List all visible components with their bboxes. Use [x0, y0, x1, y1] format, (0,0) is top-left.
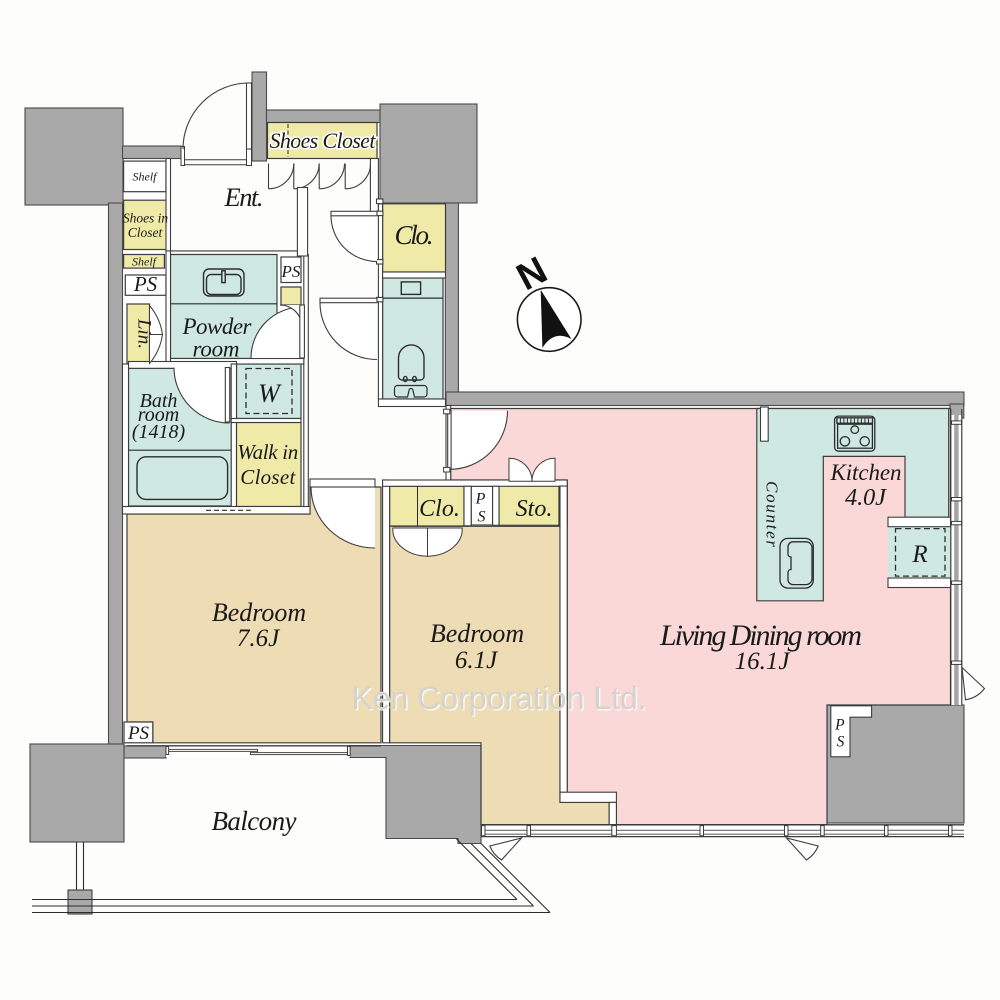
- svg-text:Bedroom: Bedroom: [212, 598, 306, 627]
- svg-text:S: S: [837, 734, 845, 751]
- svg-text:W: W: [258, 379, 282, 408]
- svg-text:Ken Corporation Ltd.: Ken Corporation Ltd.: [351, 680, 646, 716]
- svg-text:room: room: [193, 337, 240, 362]
- svg-text:6.1J: 6.1J: [455, 647, 499, 674]
- svg-text:Kitchen: Kitchen: [830, 460, 902, 485]
- svg-text:Closet: Closet: [128, 225, 164, 240]
- svg-text:Closet: Closet: [240, 465, 296, 489]
- svg-text:16.1J: 16.1J: [735, 648, 792, 675]
- svg-text:PS: PS: [281, 262, 301, 281]
- svg-text:7.6J: 7.6J: [237, 625, 281, 652]
- svg-text:Sto.: Sto.: [516, 496, 553, 522]
- svg-text:Ent.: Ent.: [224, 182, 264, 212]
- svg-text:Bedroom: Bedroom: [430, 619, 524, 648]
- svg-text:Counter: Counter: [763, 481, 782, 547]
- svg-text:P: P: [834, 717, 845, 734]
- svg-text:(1418): (1418): [132, 421, 186, 443]
- svg-text:Shelf: Shelf: [133, 170, 159, 184]
- svg-text:P: P: [475, 491, 486, 508]
- svg-text:Clo.: Clo.: [395, 220, 434, 250]
- svg-text:4.0J: 4.0J: [845, 484, 887, 511]
- svg-text:PS: PS: [133, 272, 158, 296]
- svg-text:Shelf: Shelf: [132, 255, 158, 269]
- svg-text:S: S: [478, 509, 486, 526]
- svg-text:PS: PS: [127, 723, 150, 744]
- svg-text:Clo.: Clo.: [419, 496, 460, 522]
- svg-text:Shoes Closet: Shoes Closet: [270, 128, 377, 153]
- svg-text:R: R: [911, 541, 927, 568]
- svg-text:Powder: Powder: [182, 314, 253, 339]
- svg-text:Shoes in: Shoes in: [123, 211, 169, 226]
- svg-text:Walk in: Walk in: [237, 440, 298, 464]
- svg-text:Lin.: Lin.: [134, 318, 155, 349]
- svg-text:Balcony: Balcony: [212, 806, 297, 836]
